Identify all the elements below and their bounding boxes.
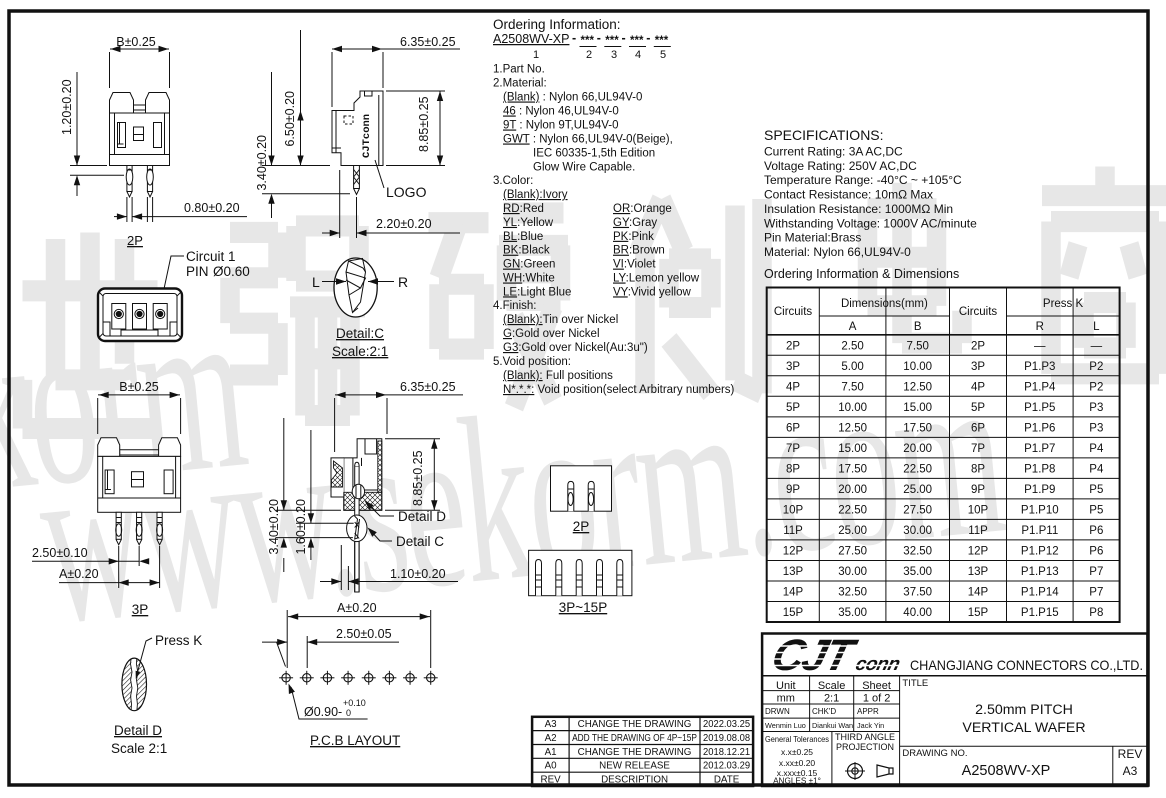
svg-text:P1.P12: P1.P12 — [1021, 545, 1059, 557]
svg-text:-: - — [597, 31, 601, 45]
svg-text:Circuits: Circuits — [774, 306, 813, 318]
svg-text:TITLE: TITLE — [902, 678, 928, 689]
svg-text:conn: conn — [853, 654, 902, 675]
svg-text:14P: 14P — [968, 586, 989, 598]
svg-text:32.50: 32.50 — [903, 545, 932, 557]
svg-text:YL:Yellow: YL:Yellow — [503, 217, 554, 229]
svg-text:Press K: Press K — [155, 633, 202, 648]
svg-text:8P: 8P — [786, 463, 800, 475]
svg-text:DRWN: DRWN — [765, 707, 790, 716]
svg-text:L: L — [312, 274, 320, 290]
svg-text:GY:Gray: GY:Gray — [613, 217, 657, 229]
svg-text:P7: P7 — [1089, 566, 1103, 578]
svg-text:Detail C: Detail C — [396, 534, 444, 549]
svg-text:1.20±0.20: 1.20±0.20 — [60, 79, 74, 135]
svg-text:7.50: 7.50 — [907, 340, 929, 352]
svg-text:40.00: 40.00 — [903, 607, 932, 619]
svg-text:Sheet: Sheet — [862, 680, 891, 692]
svg-text:2.50mm PITCH: 2.50mm PITCH — [975, 702, 1073, 718]
svg-text:x.xx±0.20: x.xx±0.20 — [779, 758, 816, 768]
svg-text:2012.03.29: 2012.03.29 — [703, 761, 750, 772]
svg-text:15P: 15P — [783, 607, 804, 619]
svg-text:P2: P2 — [1089, 381, 1103, 393]
svg-text:Circuits: Circuits — [959, 306, 998, 318]
svg-text:1.60±0.20: 1.60±0.20 — [294, 499, 308, 555]
svg-text:B±0.25: B±0.25 — [116, 35, 156, 49]
svg-text:0: 0 — [346, 708, 351, 718]
svg-text:2P: 2P — [971, 340, 985, 352]
svg-text:—: — — [1091, 340, 1103, 352]
svg-text:A2508WV-XP: A2508WV-XP — [962, 763, 1051, 779]
svg-text:Detail:C: Detail:C — [336, 326, 384, 341]
svg-text:LOGO: LOGO — [386, 184, 427, 200]
svg-text:9P: 9P — [971, 484, 985, 496]
svg-text:L: L — [1093, 321, 1100, 333]
svg-text:Voltage Rating: 250V AC,DC: Voltage Rating: 250V AC,DC — [764, 159, 917, 173]
svg-text:P1.P8: P1.P8 — [1024, 463, 1055, 475]
svg-text:Press K: Press K — [1043, 298, 1084, 310]
svg-text:17.50: 17.50 — [903, 422, 932, 434]
svg-text:R: R — [398, 274, 408, 290]
svg-text:P3: P3 — [1089, 402, 1103, 414]
svg-text:B±0.25: B±0.25 — [119, 380, 159, 394]
svg-text:1: 1 — [533, 49, 539, 61]
svg-text:6.35±0.25: 6.35±0.25 — [400, 35, 456, 49]
svg-text:BL:Blue: BL:Blue — [503, 231, 543, 243]
svg-text:***: *** — [630, 35, 644, 47]
svg-text:P4: P4 — [1089, 463, 1104, 475]
svg-text:NEW RELEASE: NEW RELEASE — [599, 761, 670, 772]
svg-text:P1.P15: P1.P15 — [1021, 607, 1059, 619]
svg-text:2.50±0.10: 2.50±0.10 — [32, 546, 88, 560]
svg-text:SPECIFICATIONS:: SPECIFICATIONS: — [764, 127, 884, 143]
svg-text:P1.P4: P1.P4 — [1024, 381, 1056, 393]
svg-text:6.35±0.25: 6.35±0.25 — [400, 380, 456, 394]
svg-text:12P: 12P — [968, 545, 989, 557]
svg-text:Contact Resistance: 10mΩ Max: Contact Resistance: 10mΩ Max — [764, 188, 933, 202]
svg-text:8.85±0.25: 8.85±0.25 — [417, 96, 431, 152]
svg-text:***: *** — [605, 35, 619, 47]
svg-text:PIN: PIN — [186, 264, 209, 279]
svg-text:B: B — [914, 321, 922, 333]
svg-text:A1: A1 — [545, 747, 557, 758]
svg-text:-: - — [622, 31, 626, 45]
svg-text:P7: P7 — [1089, 586, 1103, 598]
svg-text:Ordering Information:: Ordering Information: — [493, 17, 621, 32]
svg-text:PK:Pink: PK:Pink — [613, 231, 654, 243]
svg-text:CHANGE THE DRAWING: CHANGE THE DRAWING — [578, 747, 692, 758]
svg-text:5: 5 — [660, 49, 666, 61]
svg-text:ANGLES ±1°: ANGLES ±1° — [773, 777, 821, 786]
svg-text:2P: 2P — [786, 340, 800, 352]
svg-text:Jack Yin: Jack Yin — [857, 721, 884, 730]
svg-text:ADD THE DRAWING OF 4P~15P: ADD THE DRAWING OF 4P~15P — [572, 733, 697, 744]
svg-text:1.Part No.: 1.Part No. — [493, 64, 545, 76]
svg-text:A3: A3 — [545, 719, 558, 730]
svg-text:35.00: 35.00 — [838, 607, 867, 619]
svg-text:A±0.20: A±0.20 — [337, 601, 377, 615]
svg-text:22.50: 22.50 — [838, 504, 867, 516]
svg-text:2018.12.21: 2018.12.21 — [703, 747, 750, 758]
svg-text:-: - — [572, 31, 576, 45]
svg-text:2022.03.25: 2022.03.25 — [703, 719, 751, 730]
svg-text:BR:Brown: BR:Brown — [613, 245, 665, 257]
svg-text:A2: A2 — [545, 733, 557, 744]
svg-text:11P: 11P — [783, 525, 803, 537]
svg-text:VERTICAL WAFER: VERTICAL WAFER — [962, 720, 1085, 736]
svg-text:2.20±0.20: 2.20±0.20 — [376, 217, 432, 231]
svg-text:12.50: 12.50 — [838, 422, 867, 434]
svg-text:P1.P6: P1.P6 — [1024, 422, 1055, 434]
svg-text:OR:Orange: OR:Orange — [613, 203, 672, 215]
svg-text:Ø0.90-: Ø0.90- — [304, 705, 342, 719]
svg-text:VY:Vivid yellow: VY:Vivid yellow — [613, 286, 691, 298]
svg-text:2P: 2P — [573, 519, 590, 534]
svg-text:2.50: 2.50 — [841, 340, 863, 352]
svg-text:APPR: APPR — [857, 707, 879, 716]
svg-text:Scale:2:1: Scale:2:1 — [332, 344, 388, 359]
svg-text:LE:Light Blue: LE:Light Blue — [503, 286, 571, 298]
svg-text:GN:Green: GN:Green — [503, 259, 555, 271]
svg-text:20.00: 20.00 — [838, 484, 867, 496]
svg-text:A2508WV-XP: A2508WV-XP — [493, 32, 569, 46]
svg-text:A±0.20: A±0.20 — [59, 567, 99, 581]
svg-text:4P: 4P — [786, 381, 800, 393]
svg-text:DATE: DATE — [714, 775, 740, 786]
svg-text:x.x±0.25: x.x±0.25 — [781, 747, 813, 757]
svg-text:5P: 5P — [971, 402, 985, 414]
svg-text:Circuit 1: Circuit 1 — [186, 249, 236, 264]
svg-text:Current Rating: 3A AC,DC: Current Rating: 3A AC,DC — [764, 145, 903, 159]
svg-text:7P: 7P — [971, 443, 985, 455]
svg-text:30.00: 30.00 — [838, 566, 867, 578]
svg-text:P4: P4 — [1089, 443, 1104, 455]
svg-text:CJT: CJT — [767, 632, 862, 680]
svg-text:Detail D: Detail D — [114, 723, 162, 738]
svg-text:15.00: 15.00 — [838, 443, 867, 455]
svg-text:CHANGJIANG CONNECTORS CO.,LTD.: CHANGJIANG CONNECTORS CO.,LTD. — [910, 658, 1143, 673]
svg-text:13P: 13P — [968, 566, 989, 578]
svg-text:GWT : Nylon 66,UL94V-0(Beige),: GWT : Nylon 66,UL94V-0(Beige), — [503, 134, 673, 146]
svg-text:14P: 14P — [783, 586, 804, 598]
svg-text:***: *** — [581, 35, 595, 47]
svg-text:3P: 3P — [971, 361, 985, 373]
svg-text:PROJECTION: PROJECTION — [836, 742, 894, 752]
svg-text:P1.P5: P1.P5 — [1024, 402, 1055, 414]
svg-text:Wenmin Luo: Wenmin Luo — [765, 721, 806, 730]
svg-text:3.Color:: 3.Color: — [493, 175, 533, 187]
svg-text:P1.P10: P1.P10 — [1021, 504, 1059, 516]
svg-text:10P: 10P — [968, 504, 989, 516]
svg-text:***: *** — [655, 35, 669, 47]
svg-text:8P: 8P — [971, 463, 985, 475]
svg-text:25.00: 25.00 — [903, 484, 932, 496]
svg-text:A: A — [849, 321, 857, 333]
svg-text:A3: A3 — [1123, 764, 1138, 778]
svg-text:3.40±0.20: 3.40±0.20 — [255, 135, 269, 191]
svg-text:2.50±0.05: 2.50±0.05 — [336, 627, 392, 641]
svg-text:22.50: 22.50 — [903, 463, 932, 475]
svg-text:20.00: 20.00 — [903, 443, 932, 455]
svg-text:Pin Material:Brass: Pin Material:Brass — [764, 231, 861, 245]
svg-text:1.10±0.20: 1.10±0.20 — [390, 567, 446, 581]
svg-text:VI:Violet: VI:Violet — [613, 259, 656, 271]
svg-text:37.50: 37.50 — [903, 586, 932, 598]
svg-text:P1.P13: P1.P13 — [1021, 566, 1059, 578]
svg-text:35.00: 35.00 — [903, 566, 932, 578]
svg-text:(Blank):Tin over Nickel: (Blank):Tin over Nickel — [503, 314, 618, 326]
svg-text:27.50: 27.50 — [838, 545, 867, 557]
svg-text:10P: 10P — [783, 504, 804, 516]
svg-text:CHK'D: CHK'D — [812, 707, 836, 716]
svg-text:P1.P7: P1.P7 — [1024, 443, 1055, 455]
svg-text:Detail D: Detail D — [398, 509, 446, 524]
svg-text:27.50: 27.50 — [903, 504, 932, 516]
svg-text:—: — — [1034, 340, 1046, 352]
svg-text:12.50: 12.50 — [903, 381, 932, 393]
svg-text:(Blank): Full positions: (Blank): Full positions — [503, 370, 613, 382]
svg-text:P1.P14: P1.P14 — [1021, 586, 1059, 598]
svg-text:3P: 3P — [132, 602, 149, 617]
svg-text:P1.P3: P1.P3 — [1024, 361, 1055, 373]
svg-text:-: - — [646, 31, 650, 45]
svg-text:3P: 3P — [786, 361, 800, 373]
svg-text:RD:Red: RD:Red — [503, 203, 544, 215]
svg-text:1 of 2: 1 of 2 — [863, 693, 891, 705]
svg-text:Scale: Scale — [818, 680, 846, 692]
svg-text:(Blank) : Nylon 66,UL94V-0: (Blank) : Nylon 66,UL94V-0 — [503, 92, 642, 104]
svg-text:3.40±0.20: 3.40±0.20 — [267, 499, 281, 555]
svg-text:Material: Nylon 66,UL94V-0: Material: Nylon 66,UL94V-0 — [764, 245, 911, 259]
svg-text:G3:Gold over Nickel(Au:3u"): G3:Gold over Nickel(Au:3u") — [503, 342, 648, 354]
svg-text:0.80±0.20: 0.80±0.20 — [184, 201, 240, 215]
svg-text:6.50±0.20: 6.50±0.20 — [283, 91, 297, 147]
svg-text:25.00: 25.00 — [838, 525, 867, 537]
svg-text:11P: 11P — [968, 525, 988, 537]
svg-text:G:Gold over Nickel: G:Gold over Nickel — [503, 328, 600, 340]
svg-text:+0.10: +0.10 — [343, 698, 366, 708]
svg-text:P5: P5 — [1089, 504, 1103, 516]
svg-text:P1.P11: P1.P11 — [1021, 525, 1058, 537]
svg-text:3P~15P: 3P~15P — [559, 600, 607, 615]
svg-text:REV: REV — [1118, 747, 1143, 761]
svg-text:P.C.B LAYOUT: P.C.B LAYOUT — [310, 733, 400, 748]
svg-text:DESCRIPTION: DESCRIPTION — [601, 775, 668, 786]
svg-text:CHANGE THE DRAWING: CHANGE THE DRAWING — [578, 719, 692, 730]
svg-text:P5: P5 — [1089, 484, 1103, 496]
svg-text:LY:Lemon yellow: LY:Lemon yellow — [613, 273, 700, 285]
svg-text:6P: 6P — [971, 422, 985, 434]
svg-text:Glow Wire Capable.: Glow Wire Capable. — [533, 162, 635, 174]
svg-text:32.50: 32.50 — [838, 586, 867, 598]
svg-text:5P: 5P — [786, 402, 800, 414]
svg-text:6P: 6P — [786, 422, 800, 434]
svg-text:BK:Black: BK:Black — [503, 245, 550, 257]
svg-text:7P: 7P — [786, 443, 800, 455]
svg-text:30.00: 30.00 — [903, 525, 932, 537]
svg-text:7.50: 7.50 — [841, 381, 863, 393]
svg-text:P6: P6 — [1089, 545, 1103, 557]
svg-text:Withstanding Voltage: 1000V AC: Withstanding Voltage: 1000V AC/minute — [764, 216, 977, 230]
svg-text:Dimensions(mm): Dimensions(mm) — [841, 298, 928, 310]
svg-text:(Blank):Ivory: (Blank):Ivory — [503, 189, 568, 201]
svg-text:Scale 2:1: Scale 2:1 — [111, 741, 167, 756]
svg-text:Ø0.60: Ø0.60 — [213, 264, 250, 279]
svg-text:Unit: Unit — [776, 680, 796, 692]
svg-text:IEC 60335-1,5th Edition: IEC 60335-1,5th Edition — [533, 148, 655, 160]
svg-text:THIRD ANGLE: THIRD ANGLE — [835, 732, 895, 742]
svg-text:N*.*.*: Void position(select A: N*.*.*: Void position(select Arbitrary n… — [503, 384, 735, 396]
svg-text:8.85±0.25: 8.85±0.25 — [411, 450, 425, 506]
svg-text:R: R — [1036, 321, 1044, 333]
svg-text:4: 4 — [635, 49, 641, 61]
svg-text:5.Void position:: 5.Void position: — [493, 356, 571, 368]
svg-text:A0: A0 — [545, 761, 558, 772]
svg-text:mm: mm — [777, 693, 795, 705]
svg-text:WH:White: WH:White — [503, 273, 555, 285]
svg-text:CJTconn: CJTconn — [361, 114, 373, 158]
svg-text:13P: 13P — [783, 566, 804, 578]
svg-text:17.50: 17.50 — [838, 463, 867, 475]
svg-text:4.Finish:: 4.Finish: — [493, 300, 536, 312]
svg-text:9P: 9P — [786, 484, 800, 496]
svg-text:P1.P9: P1.P9 — [1024, 484, 1055, 496]
svg-text:46 : Nylon 46,UL94V-0: 46 : Nylon 46,UL94V-0 — [503, 106, 619, 118]
svg-text:2:1: 2:1 — [824, 693, 839, 705]
svg-text:15P: 15P — [968, 607, 989, 619]
svg-text:P3: P3 — [1089, 422, 1103, 434]
svg-text:2.Material:: 2.Material: — [493, 78, 547, 90]
svg-text:REV: REV — [541, 775, 562, 786]
svg-text:5.00: 5.00 — [841, 361, 863, 373]
svg-text:P6: P6 — [1089, 525, 1103, 537]
svg-text:2: 2 — [586, 49, 592, 61]
svg-text:4P: 4P — [971, 381, 985, 393]
svg-text:P2: P2 — [1089, 361, 1103, 373]
svg-text:2019.08.08: 2019.08.08 — [703, 733, 751, 744]
svg-text:12P: 12P — [783, 545, 804, 557]
svg-text:Ordering Information & Dimensi: Ordering Information & Dimensions — [764, 267, 959, 281]
svg-text:P8: P8 — [1089, 607, 1103, 619]
svg-text:15.00: 15.00 — [903, 402, 932, 414]
svg-text:Temperature Range: -40°C ~ +10: Temperature Range: -40°C ~ +105°C — [764, 173, 962, 187]
svg-text:9T : Nylon 9T,UL94V-0: 9T : Nylon 9T,UL94V-0 — [503, 120, 619, 132]
svg-text:10.00: 10.00 — [903, 361, 932, 373]
svg-text:DRAWING NO.: DRAWING NO. — [902, 748, 967, 759]
svg-text:2P: 2P — [127, 233, 143, 248]
svg-text:General Tolerances: General Tolerances — [765, 735, 829, 744]
svg-text:3: 3 — [611, 49, 617, 61]
svg-text:Diankui Wan: Diankui Wan — [812, 721, 853, 730]
svg-text:Insulation Resistance: 1000MΩ: Insulation Resistance: 1000MΩ Min — [764, 202, 953, 216]
svg-text:10.00: 10.00 — [838, 402, 867, 414]
